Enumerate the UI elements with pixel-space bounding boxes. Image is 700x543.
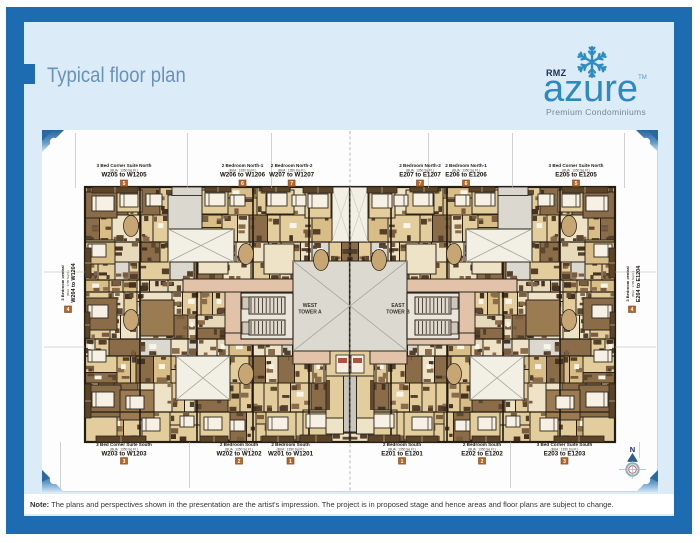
svg-text:5: 5: [575, 181, 578, 187]
svg-text:EAST: EAST: [391, 303, 404, 309]
svg-text:1: 1: [289, 459, 292, 465]
svg-text:3 Bed Corner Suite South: 3 Bed Corner Suite South: [96, 442, 152, 447]
svg-text:W203 to W1203: W203 to W1203: [101, 451, 147, 458]
svg-text:2 Bedroom North-2: 2 Bedroom North-2: [399, 163, 441, 168]
svg-text:6: 6: [241, 181, 244, 187]
svg-text:3 Bedroom central: 3 Bedroom central: [625, 266, 630, 301]
svg-text:2 Bedroom South: 2 Bedroom South: [463, 442, 501, 447]
svg-text:2 Bedroom North-1: 2 Bedroom North-1: [445, 163, 487, 168]
svg-text:E206 to E1206: E206 to E1206: [445, 172, 487, 179]
svg-text:3 Bed Corner Suite North: 3 Bed Corner Suite North: [549, 163, 604, 168]
svg-text:7: 7: [290, 181, 293, 187]
svg-text:2: 2: [481, 459, 484, 465]
svg-text:W206 to W1206: W206 to W1206: [220, 172, 266, 179]
svg-text:7: 7: [419, 181, 422, 187]
svg-text:W204 to W1204: W204 to W1204: [71, 263, 77, 302]
svg-text:3 Bed Corner Suite North: 3 Bed Corner Suite North: [97, 163, 152, 168]
svg-text:(BUA : 1795 Sq.Ft.): (BUA : 1795 Sq.Ft.): [66, 270, 70, 296]
svg-text:WEST: WEST: [303, 303, 317, 309]
svg-text:2: 2: [238, 459, 241, 465]
svg-text:TOWER B: TOWER B: [386, 310, 410, 316]
svg-text:2 Bedroom South: 2 Bedroom South: [383, 442, 421, 447]
svg-text:3 Bed Corner Suite South: 3 Bed Corner Suite South: [537, 442, 593, 447]
svg-text:E207 to E1207: E207 to E1207: [399, 172, 441, 179]
svg-text:1: 1: [401, 459, 404, 465]
svg-text:2 Bedroom South: 2 Bedroom South: [271, 442, 309, 447]
svg-text:4: 4: [67, 307, 70, 313]
svg-text:(BUA : 1795 Sq.Ft.): (BUA : 1795 Sq.Ft.): [631, 271, 635, 297]
svg-text:E202 to E1202: E202 to E1202: [461, 451, 503, 458]
svg-text:4: 4: [631, 307, 634, 313]
svg-text:3: 3: [123, 459, 126, 465]
svg-text:E201 to E1201: E201 to E1201: [381, 451, 423, 458]
svg-text:W207 to W1207: W207 to W1207: [269, 172, 315, 179]
svg-text:W205 to W1205: W205 to W1205: [101, 172, 147, 179]
svg-text:2 Bedroom South: 2 Bedroom South: [220, 442, 258, 447]
svg-text:3 Bedroom central: 3 Bedroom central: [60, 265, 65, 300]
svg-text:W202 to W1202: W202 to W1202: [216, 451, 262, 458]
svg-text:2 Bedroom North-2: 2 Bedroom North-2: [271, 163, 313, 168]
svg-text:6: 6: [465, 181, 468, 187]
svg-text:3: 3: [563, 459, 566, 465]
svg-text:E204 to E1204: E204 to E1204: [636, 266, 642, 302]
svg-text:5: 5: [123, 181, 126, 187]
svg-text:W201 to W1201: W201 to W1201: [268, 451, 314, 458]
svg-text:E205 to E1205: E205 to E1205: [555, 172, 597, 179]
svg-text:E203 to E1203: E203 to E1203: [544, 451, 586, 458]
svg-text:N: N: [630, 445, 635, 454]
svg-text:TOWER A: TOWER A: [298, 310, 322, 316]
svg-text:2 Bedroom North-1: 2 Bedroom North-1: [222, 163, 264, 168]
